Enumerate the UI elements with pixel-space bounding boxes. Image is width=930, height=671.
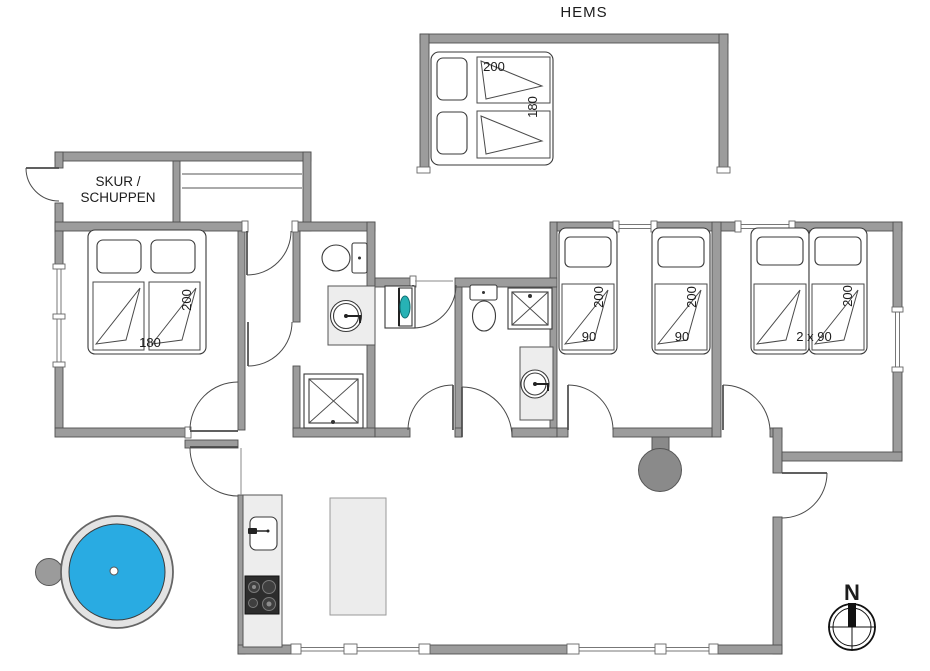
wall-segment (55, 365, 63, 428)
wall-segment (773, 517, 782, 654)
hems-label: HEMS (560, 4, 607, 21)
bathroom-2-door (462, 387, 512, 437)
wall-end-cap (417, 167, 430, 173)
wall-segment (293, 222, 375, 231)
wall-segment (173, 161, 180, 231)
wall-end-cap (242, 221, 248, 232)
wall-segment (613, 428, 712, 437)
pillow (658, 237, 704, 267)
pillow (151, 240, 195, 273)
east-entry-door (782, 473, 827, 518)
bed-length-label: 200 (684, 286, 699, 308)
floor-plan-page: SKUR / SCHUPPEN HEMS 200 180 180 20 (0, 0, 930, 671)
bed-width-label: 90 (582, 329, 596, 344)
pillow (437, 112, 467, 154)
shower (508, 288, 552, 329)
bed-length-label: 200 (179, 289, 194, 311)
hems-bed: 200 180 (431, 52, 553, 165)
pillow (97, 240, 141, 273)
wall-segment (773, 428, 782, 473)
hems-loft: HEMS 200 180 (431, 4, 608, 165)
twin-bed: 2 x 90 200 (751, 228, 867, 354)
hot-tub (36, 516, 174, 628)
hall-north-door (247, 231, 291, 275)
pillow (815, 237, 861, 265)
single-bed-1: 200 90 (559, 228, 617, 354)
hot-tub-knob (36, 559, 63, 586)
bed-width-label: 2 x 90 (796, 329, 831, 344)
wall-segment (55, 231, 63, 268)
drain (528, 294, 532, 298)
pillow (565, 237, 611, 267)
wall-end-cap (292, 221, 298, 232)
wall-segment (238, 231, 245, 430)
floor-plan: SKUR / SCHUPPEN HEMS 200 180 180 20 (0, 0, 930, 671)
window (892, 307, 903, 372)
stove-hob (245, 576, 279, 614)
wall-segment (712, 222, 721, 437)
wall-segment (557, 428, 568, 437)
wall-segment (293, 428, 375, 437)
wall-segment (420, 34, 429, 172)
wall-segment (303, 152, 311, 231)
west-entry-door (190, 447, 238, 496)
sink (520, 347, 553, 420)
pillow (757, 237, 803, 265)
wall-segment (512, 428, 557, 437)
hot-tub-center (110, 567, 118, 575)
wall-segment (420, 34, 728, 43)
wall-segment (293, 366, 300, 430)
wall-segment (782, 452, 902, 461)
bed-length-label: 200 (483, 59, 505, 74)
shed: SKUR / SCHUPPEN (80, 174, 302, 205)
pillow (437, 58, 467, 100)
shed-door (26, 168, 59, 201)
north-needle (848, 603, 856, 627)
wall-segment (893, 222, 902, 312)
utility-north-door (413, 285, 456, 328)
kitchen-sink (248, 517, 277, 550)
dining-table (330, 498, 386, 615)
shed-label-line2: SCHUPPEN (80, 190, 155, 205)
wall-segment (718, 645, 782, 654)
wall-segment (455, 428, 462, 437)
wall-segment (455, 287, 462, 437)
toilet (470, 285, 497, 331)
drain (331, 420, 335, 424)
bed-width-label: 180 (525, 96, 540, 118)
burner (263, 581, 276, 594)
toilet (322, 243, 367, 273)
washing-machine (385, 286, 415, 328)
wall-segment (55, 152, 311, 161)
window (53, 264, 65, 367)
wall-segment (375, 428, 410, 437)
compass: N (828, 580, 876, 651)
compass-north-label: N (844, 580, 860, 605)
bathroom-2 (470, 285, 553, 420)
double-bed: 180 200 (88, 230, 206, 354)
twin-bedroom-door (723, 385, 770, 430)
bathroom-1-door (248, 322, 292, 366)
wall-segment (55, 152, 63, 168)
wall-segment (430, 645, 567, 654)
wall-segment (893, 368, 902, 461)
wall-end-cap (717, 167, 730, 173)
bed-length-label: 200 (591, 286, 606, 308)
washer-door (400, 296, 410, 318)
double-bedroom: 180 200 (88, 230, 206, 354)
window (613, 221, 657, 232)
single-bedroom: 200 90 200 90 (559, 228, 710, 354)
shower (304, 374, 363, 428)
single-bed-2: 200 90 (652, 228, 710, 354)
wall-segment (293, 231, 300, 322)
wood-stove (639, 437, 682, 492)
sink (328, 286, 375, 345)
bed-length-label: 200 (840, 285, 855, 307)
twin-bedroom: 2 x 90 200 (751, 228, 867, 354)
utility-south-door (408, 385, 453, 430)
living-room (243, 437, 682, 647)
double-bedroom-door (190, 382, 238, 431)
wall-segment (719, 34, 728, 172)
bed-width-label: 180 (139, 335, 161, 350)
bed-width-label: 90 (675, 329, 689, 344)
single-bedroom-door (568, 385, 613, 430)
bathroom-1 (304, 243, 375, 428)
wall-segment (55, 428, 190, 437)
shed-label-line1: SKUR / (95, 174, 140, 189)
burner (249, 599, 258, 608)
